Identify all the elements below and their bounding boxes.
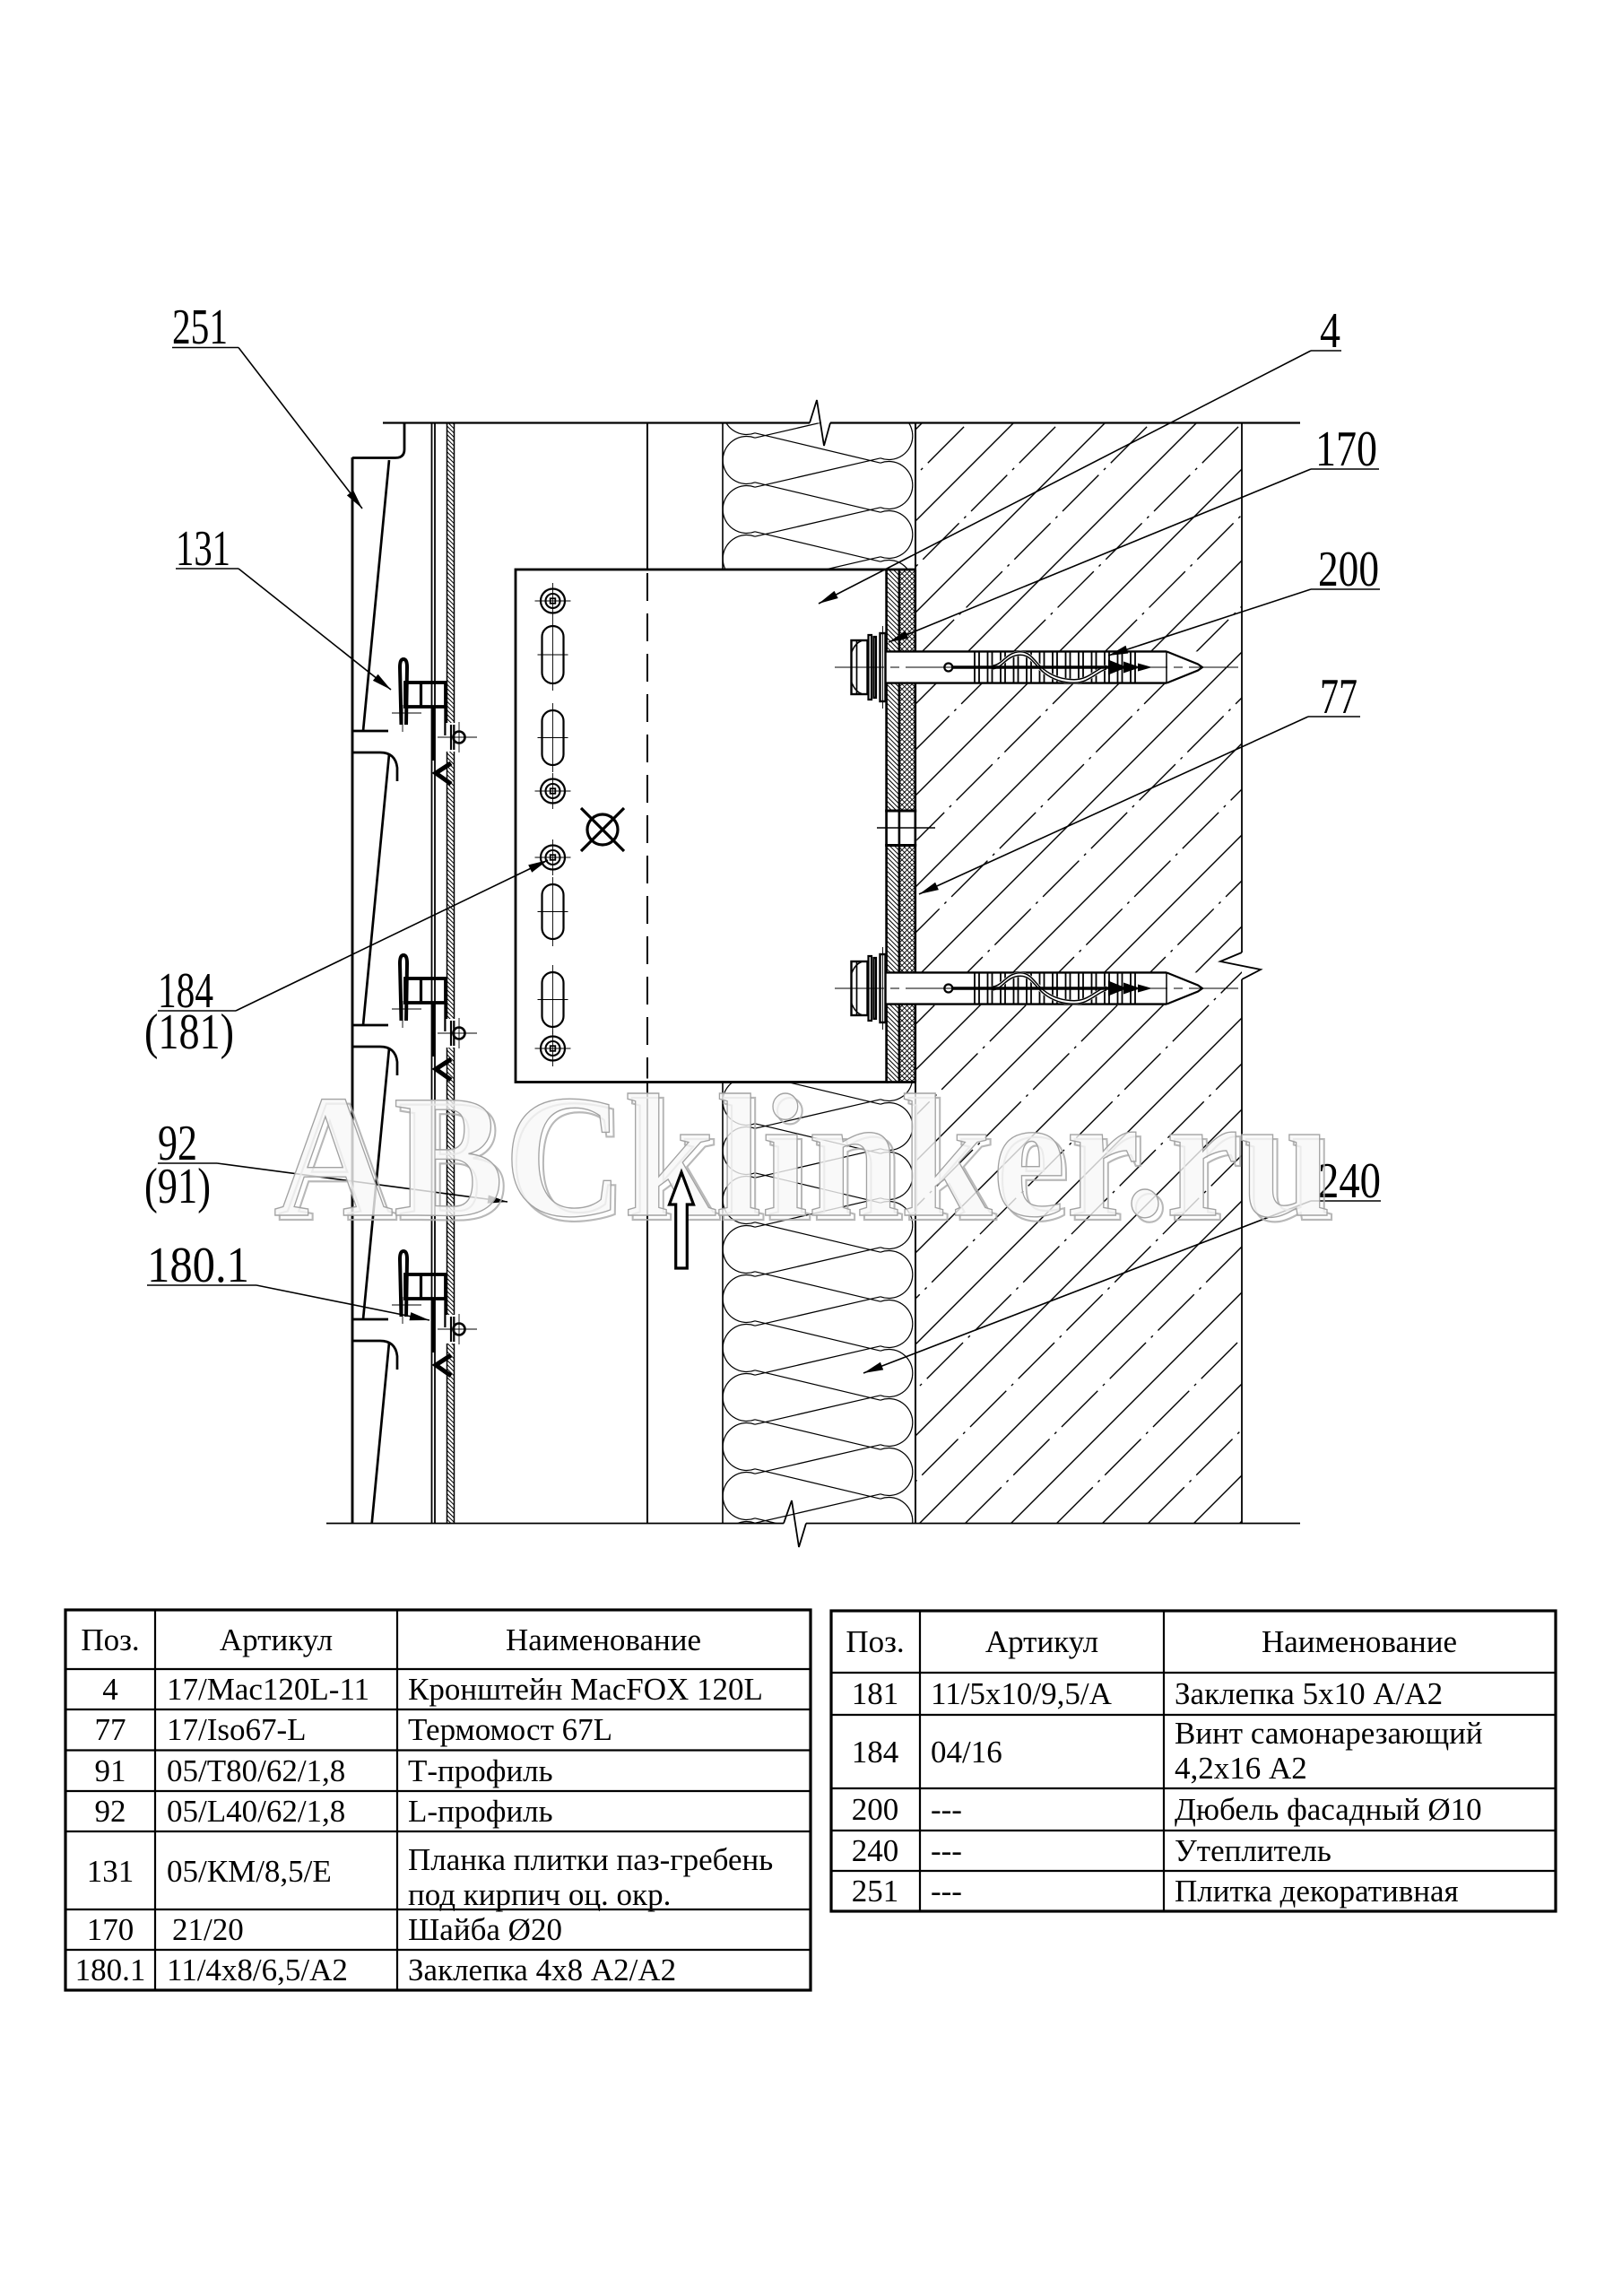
svg-text:240: 240 [852, 1833, 899, 1868]
svg-text:Плитка декоративная: Плитка декоративная [1175, 1874, 1459, 1909]
svg-text:05/КМ/8,5/Е: 05/КМ/8,5/Е [167, 1854, 332, 1889]
svg-text:Поз.: Поз. [81, 1622, 139, 1657]
svg-text:Поз.: Поз. [846, 1624, 904, 1659]
svg-text:17/Iso67-L: 17/Iso67-L [167, 1712, 307, 1747]
svg-text:200: 200 [852, 1792, 899, 1827]
svg-text:Винт самонарезающий: Винт самонарезающий [1175, 1716, 1483, 1751]
svg-text:181: 181 [852, 1676, 899, 1711]
svg-text:Артикул: Артикул [220, 1622, 333, 1657]
svg-text:---: --- [931, 1833, 962, 1868]
svg-text:---: --- [931, 1874, 962, 1909]
svg-text:91: 91 [95, 1753, 126, 1788]
svg-text:под кирпич оц. окр.: под кирпич оц. окр. [408, 1877, 671, 1912]
svg-text:92: 92 [95, 1794, 126, 1829]
svg-text:4,2х16 А2: 4,2х16 А2 [1175, 1751, 1307, 1786]
svg-text:11/5х10/9,5/А: 11/5х10/9,5/А [931, 1676, 1113, 1711]
svg-text:---: --- [931, 1792, 962, 1827]
svg-text:L-профиль: L-профиль [408, 1794, 553, 1829]
svg-text:11/4х8/6,5/А2: 11/4х8/6,5/А2 [167, 1952, 348, 1987]
svg-text:77: 77 [95, 1712, 126, 1747]
svg-text:131: 131 [87, 1854, 134, 1889]
svg-text:184: 184 [852, 1735, 899, 1770]
svg-text:Наименование: Наименование [1262, 1624, 1457, 1659]
svg-text:251: 251 [852, 1874, 899, 1909]
svg-text:Шайба Ø20: Шайба Ø20 [408, 1912, 562, 1947]
svg-text:Дюбель фасадный Ø10: Дюбель фасадный Ø10 [1175, 1792, 1482, 1827]
svg-text:Утеплитель: Утеплитель [1175, 1833, 1331, 1868]
svg-text:ABCklinker.ru: ABCklinker.ru [273, 1059, 1331, 1254]
svg-text:05/L40/62/1,8: 05/L40/62/1,8 [167, 1794, 345, 1829]
svg-text:Термомост 67L: Термомост 67L [408, 1712, 612, 1747]
svg-text:180.1: 180.1 [75, 1952, 146, 1987]
svg-text:Т-профиль: Т-профиль [408, 1753, 553, 1788]
svg-text:4: 4 [102, 1672, 118, 1707]
svg-text:170: 170 [87, 1912, 134, 1947]
svg-text:(91): (91) [144, 1159, 211, 1214]
svg-text:04/16: 04/16 [931, 1735, 1002, 1770]
svg-text:05/Т80/62/1,8: 05/Т80/62/1,8 [167, 1753, 345, 1788]
svg-text:Артикул: Артикул [985, 1624, 1098, 1659]
svg-text:(181): (181) [144, 1004, 234, 1060]
svg-text:Планка плитки паз-гребень: Планка плитки паз-гребень [408, 1842, 773, 1877]
svg-text:Заклепка 5х10 А/А2: Заклепка 5х10 А/А2 [1175, 1676, 1443, 1711]
svg-text:Наименование: Наименование [506, 1622, 701, 1657]
svg-text:17/Mac120L-11: 17/Mac120L-11 [167, 1672, 369, 1707]
svg-text:Кронштейн MacFOX 120L: Кронштейн MacFOX 120L [408, 1672, 763, 1707]
svg-text:Заклепка 4х8 А2/А2: Заклепка 4х8 А2/А2 [408, 1952, 676, 1987]
svg-text:21/20: 21/20 [172, 1912, 244, 1947]
